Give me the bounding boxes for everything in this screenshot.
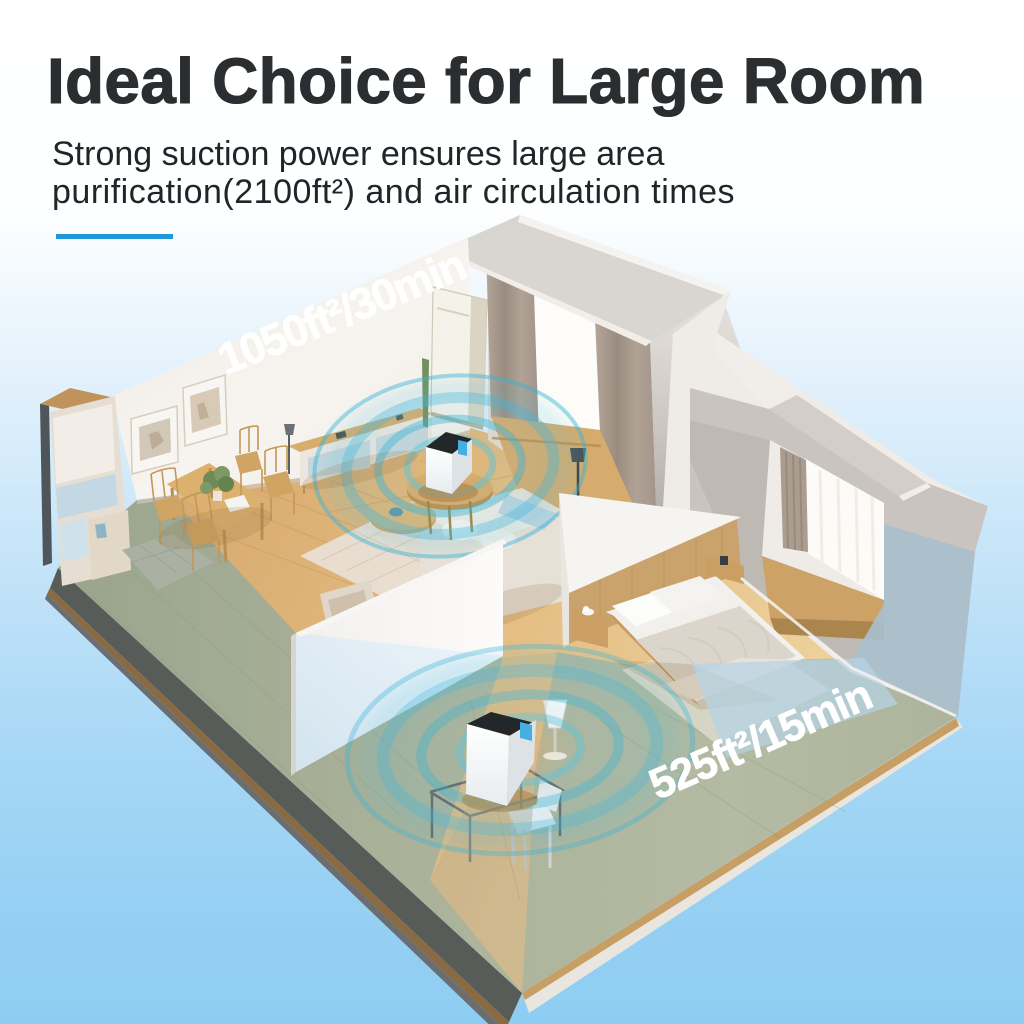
svg-text:purification(2100ft²) and air: purification(2100ft²) and air circulatio… (52, 173, 735, 211)
svg-text:Ideal Choice for Large Room: Ideal Choice for Large Room (47, 45, 925, 117)
svg-text:Strong suction power ensures l: Strong suction power ensures large area (52, 135, 664, 173)
